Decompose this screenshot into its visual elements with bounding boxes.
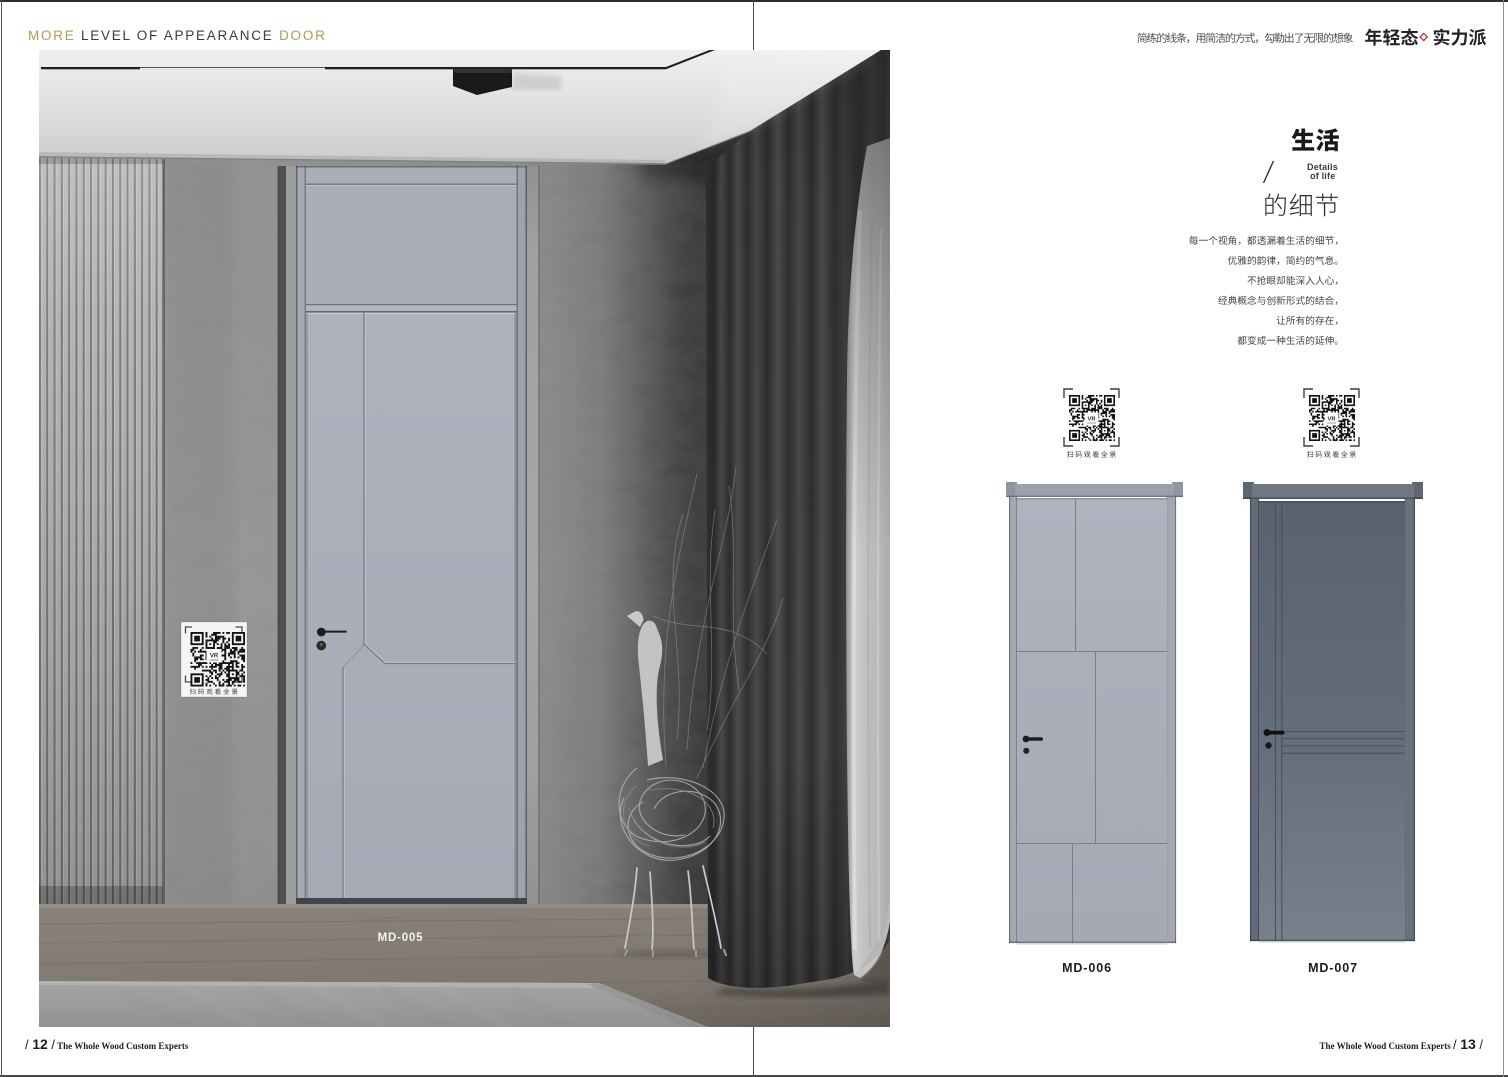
svg-text:VR: VR [1327, 417, 1336, 423]
svg-text:VR: VR [1087, 417, 1096, 423]
